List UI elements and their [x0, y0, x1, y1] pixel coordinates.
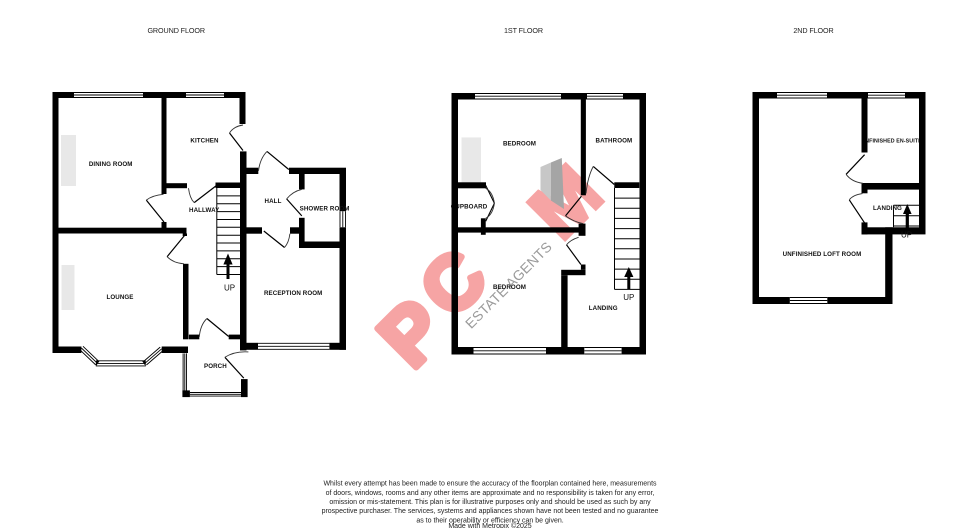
- svg-text:GROUND FLOOR: GROUND FLOOR: [147, 26, 205, 35]
- svg-text:BEDROOM: BEDROOM: [493, 284, 526, 291]
- svg-text:PORCH: PORCH: [204, 363, 227, 370]
- svg-text:Made with Metropix ©2025: Made with Metropix ©2025: [448, 522, 531, 528]
- svg-text:BATHROOM: BATHROOM: [596, 138, 633, 145]
- svg-text:1ST FLOOR: 1ST FLOOR: [504, 26, 543, 35]
- svg-text:RECEPTION ROOM: RECEPTION ROOM: [264, 290, 322, 297]
- svg-text:omission or mis-statement. Thi: omission or mis-statement. This plan is …: [329, 499, 651, 506]
- svg-text:LANDING: LANDING: [873, 205, 902, 212]
- svg-text:UNFINISHED LOFT ROOM: UNFINISHED LOFT ROOM: [783, 251, 862, 258]
- svg-text:Whilst every attempt has been: Whilst every attempt has been made to en…: [323, 481, 657, 488]
- svg-text:of doors, windows, rooms and a: of doors, windows, rooms and any other i…: [326, 490, 655, 497]
- svg-text:UP: UP: [623, 293, 634, 302]
- svg-text:2ND FLOOR: 2ND FLOOR: [793, 26, 833, 35]
- svg-text:KITCHEN: KITCHEN: [190, 138, 219, 145]
- svg-text:prospective purchaser. The ser: prospective purchaser. The services, sys…: [322, 508, 659, 515]
- svg-text:SHOWER ROOM: SHOWER ROOM: [300, 205, 350, 212]
- svg-text:UNFINISHED EN-SUITE: UNFINISHED EN-SUITE: [861, 138, 922, 144]
- svg-text:UP: UP: [901, 231, 912, 240]
- svg-text:HALL: HALL: [265, 198, 282, 205]
- svg-text:UP: UP: [224, 284, 235, 293]
- svg-text:HALLWAY: HALLWAY: [189, 207, 220, 214]
- svg-text:LANDING: LANDING: [589, 305, 618, 312]
- svg-text:BEDROOM: BEDROOM: [503, 141, 536, 148]
- svg-text:LOUNGE: LOUNGE: [106, 294, 133, 301]
- svg-text:DINING ROOM: DINING ROOM: [89, 161, 133, 168]
